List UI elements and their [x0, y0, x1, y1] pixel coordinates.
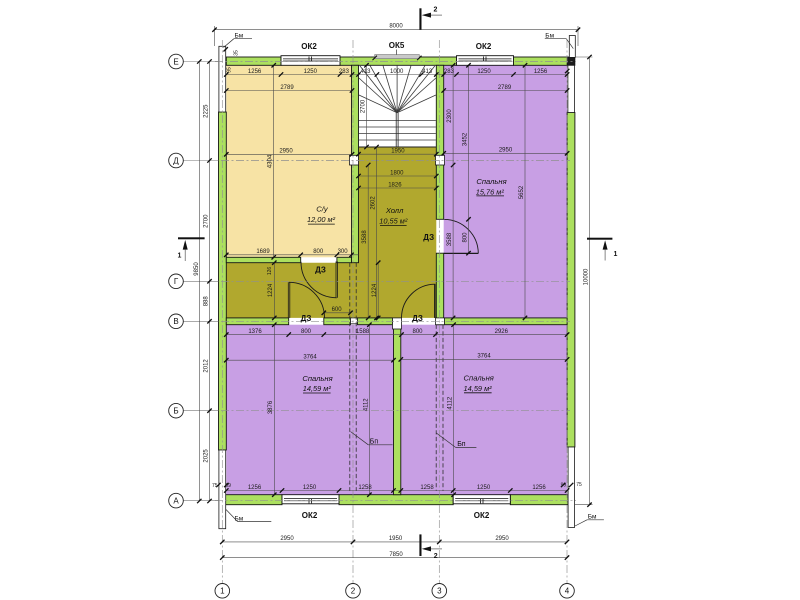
svg-text:1250: 1250: [304, 69, 318, 75]
svg-text:1: 1: [178, 253, 182, 260]
svg-text:1800: 1800: [390, 170, 404, 176]
svg-text:ОК2: ОК2: [302, 511, 318, 520]
svg-text:9850: 9850: [194, 262, 200, 276]
svg-text:1256: 1256: [532, 485, 546, 491]
svg-text:1950: 1950: [389, 536, 403, 542]
svg-text:35: 35: [234, 50, 240, 56]
svg-text:2700: 2700: [360, 99, 366, 113]
svg-text:300: 300: [338, 249, 349, 255]
svg-text:14,59 м²: 14,59 м²: [464, 384, 493, 393]
svg-text:1256: 1256: [248, 69, 262, 75]
svg-text:2700: 2700: [203, 214, 209, 228]
svg-text:888: 888: [203, 296, 209, 307]
svg-text:1250: 1250: [477, 69, 491, 75]
svg-text:95: 95: [227, 67, 233, 73]
svg-text:3764: 3764: [303, 355, 317, 361]
svg-text:ДЗ: ДЗ: [315, 266, 326, 275]
svg-text:2950: 2950: [495, 536, 509, 542]
svg-text:2300: 2300: [447, 109, 453, 123]
svg-text:1224: 1224: [268, 283, 274, 297]
svg-text:1: 1: [220, 587, 225, 596]
svg-text:1: 1: [614, 251, 618, 258]
svg-text:15,76 м²: 15,76 м²: [476, 188, 505, 197]
svg-text:В: В: [173, 317, 178, 326]
svg-text:ДЗ: ДЗ: [301, 314, 312, 323]
svg-text:126: 126: [267, 267, 273, 276]
svg-text:2950: 2950: [499, 148, 513, 154]
svg-text:800: 800: [462, 232, 468, 243]
svg-text:1250: 1250: [303, 485, 317, 491]
svg-text:75: 75: [576, 482, 582, 488]
svg-text:2926: 2926: [495, 329, 509, 335]
svg-text:1376: 1376: [248, 329, 262, 335]
svg-text:99: 99: [561, 483, 567, 489]
svg-text:2: 2: [434, 7, 438, 14]
svg-text:Спальня: Спальня: [464, 374, 494, 383]
svg-text:4112: 4112: [363, 398, 369, 412]
svg-text:413: 413: [360, 69, 371, 75]
svg-text:4112: 4112: [448, 396, 454, 410]
svg-text:ОК2: ОК2: [301, 42, 317, 51]
svg-text:10000: 10000: [583, 268, 589, 285]
svg-text:Спальня: Спальня: [476, 177, 506, 186]
svg-text:3: 3: [437, 587, 442, 596]
svg-text:283: 283: [339, 69, 350, 75]
svg-text:75: 75: [212, 483, 218, 489]
svg-text:8000: 8000: [389, 23, 403, 29]
svg-text:1258: 1258: [358, 485, 372, 491]
svg-text:Е: Е: [173, 57, 178, 66]
svg-text:1258: 1258: [420, 485, 434, 491]
svg-text:Д: Д: [173, 156, 179, 165]
svg-text:А: А: [173, 496, 179, 505]
svg-text:3588: 3588: [447, 232, 453, 246]
svg-text:Холл: Холл: [385, 206, 404, 215]
svg-text:1826: 1826: [388, 182, 402, 188]
svg-text:7850: 7850: [389, 552, 403, 558]
svg-text:2012: 2012: [203, 359, 209, 373]
svg-text:ДЗ: ДЗ: [412, 314, 423, 323]
svg-text:5652: 5652: [519, 185, 525, 199]
svg-text:Б: Б: [173, 407, 178, 416]
svg-text:3876: 3876: [268, 400, 274, 414]
svg-text:12,00 м²: 12,00 м²: [307, 215, 336, 224]
svg-text:1000: 1000: [390, 69, 404, 75]
svg-text:2: 2: [351, 587, 356, 596]
svg-text:3764: 3764: [477, 354, 491, 360]
svg-text:4304: 4304: [268, 154, 274, 168]
svg-text:2789: 2789: [280, 85, 294, 91]
svg-text:14,59 м²: 14,59 м²: [303, 384, 332, 393]
svg-text:1256: 1256: [248, 485, 262, 491]
svg-text:2950: 2950: [279, 149, 293, 155]
svg-text:1950: 1950: [391, 149, 405, 155]
svg-text:3452: 3452: [462, 132, 468, 146]
svg-text:ДЗ: ДЗ: [423, 233, 434, 242]
svg-text:1689: 1689: [256, 249, 270, 255]
svg-text:1224: 1224: [372, 283, 378, 297]
svg-text:283: 283: [444, 69, 455, 75]
svg-text:С/у: С/у: [316, 205, 329, 214]
svg-text:1250: 1250: [477, 485, 491, 491]
svg-text:2789: 2789: [498, 85, 512, 91]
svg-text:ОК2: ОК2: [474, 511, 490, 520]
svg-text:ОК5: ОК5: [389, 41, 405, 50]
svg-text:413: 413: [422, 69, 433, 75]
svg-text:99: 99: [225, 483, 231, 489]
svg-text:Спальня: Спальня: [302, 374, 332, 383]
svg-text:2950: 2950: [280, 536, 294, 542]
svg-text:800: 800: [301, 329, 312, 335]
svg-text:1588: 1588: [356, 329, 370, 335]
svg-text:3588: 3588: [362, 230, 368, 244]
svg-text:600: 600: [332, 307, 343, 313]
svg-text:2225: 2225: [203, 104, 209, 118]
svg-text:10,55 м²: 10,55 м²: [379, 217, 408, 226]
svg-text:800: 800: [412, 329, 423, 335]
svg-text:2: 2: [434, 553, 438, 560]
svg-text:ОК2: ОК2: [476, 42, 492, 51]
svg-text:2602: 2602: [370, 196, 376, 210]
svg-text:2025: 2025: [203, 449, 209, 463]
svg-text:800: 800: [313, 249, 324, 255]
svg-text:1256: 1256: [534, 69, 548, 75]
svg-text:4: 4: [565, 587, 570, 596]
svg-text:Г: Г: [174, 277, 179, 286]
